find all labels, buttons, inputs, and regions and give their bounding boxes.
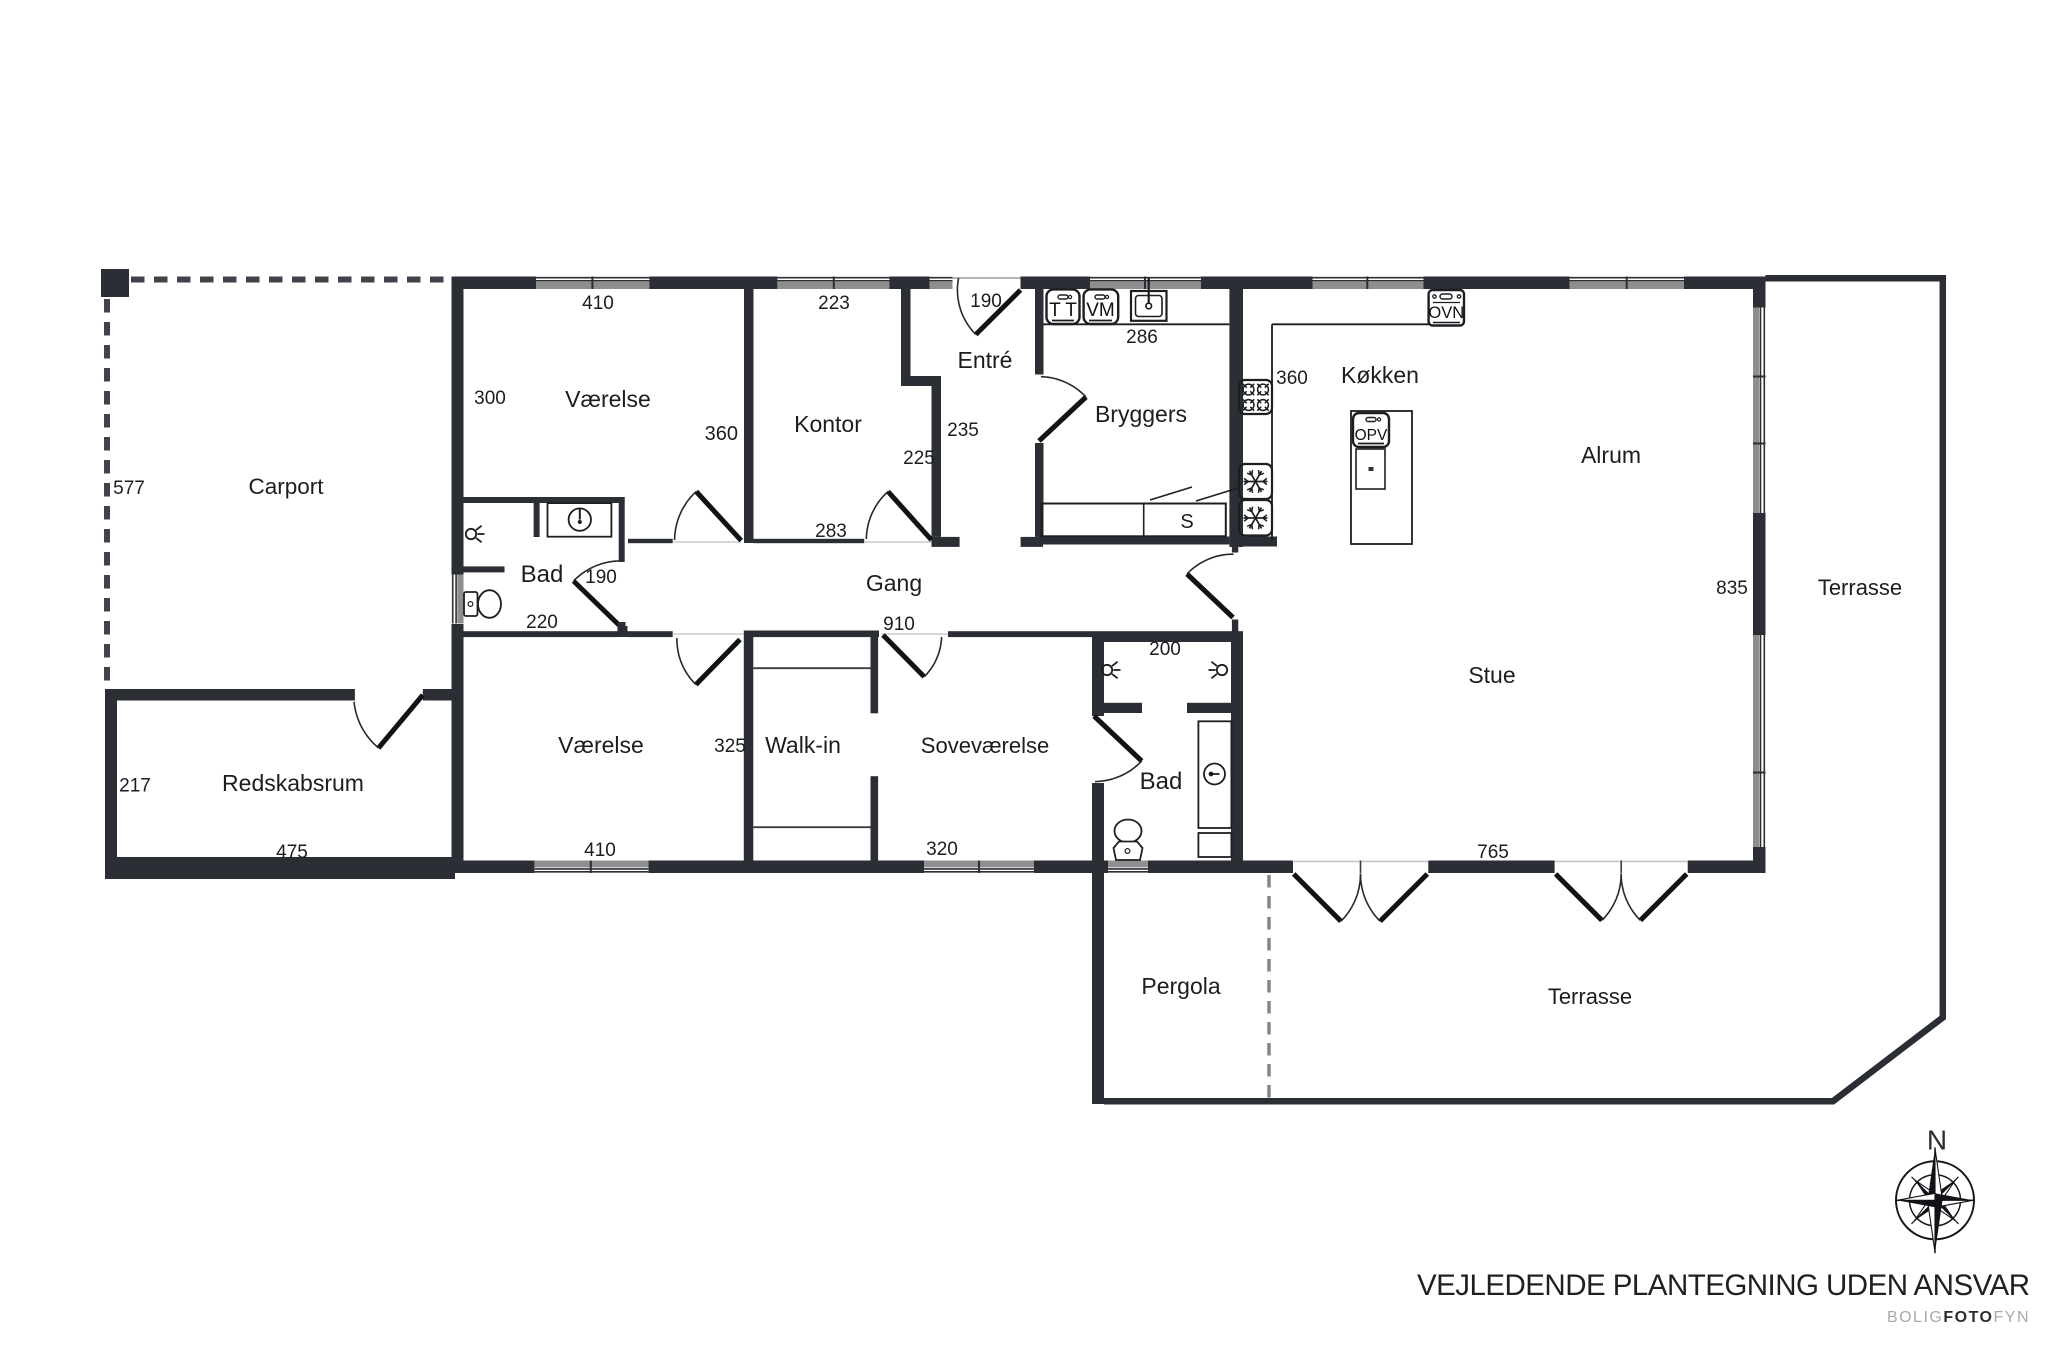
- svg-text:Gang: Gang: [866, 570, 922, 596]
- svg-text:835: 835: [1716, 578, 1748, 599]
- svg-text:190: 190: [970, 291, 1002, 312]
- svg-text:Carport: Carport: [248, 474, 324, 499]
- svg-text:Redskabsrum: Redskabsrum: [222, 770, 364, 796]
- svg-text:283: 283: [815, 521, 847, 542]
- svg-text:OVN: OVN: [1428, 304, 1464, 322]
- svg-text:325: 325: [714, 736, 746, 757]
- svg-text:320: 320: [926, 839, 958, 860]
- svg-text:S: S: [1180, 511, 1193, 533]
- svg-text:286: 286: [1126, 327, 1158, 348]
- svg-text:475: 475: [276, 842, 308, 863]
- svg-text:Entré: Entré: [958, 347, 1013, 373]
- svg-text:OPV: OPV: [1355, 427, 1388, 444]
- svg-text:N: N: [1927, 1125, 1947, 1156]
- svg-text:VM: VM: [1086, 300, 1115, 321]
- svg-text:217: 217: [119, 776, 151, 797]
- svg-text:190: 190: [585, 567, 617, 588]
- svg-text:Værelse: Værelse: [565, 386, 651, 412]
- svg-text:200: 200: [1149, 639, 1181, 660]
- svg-text:765: 765: [1477, 842, 1509, 863]
- svg-text:910: 910: [883, 614, 915, 635]
- svg-text:223: 223: [818, 293, 850, 314]
- svg-text:225: 225: [903, 448, 935, 469]
- svg-text:Alrum: Alrum: [1581, 442, 1641, 468]
- svg-text:220: 220: [526, 612, 558, 633]
- svg-text:Bad: Bad: [1140, 768, 1183, 795]
- svg-text:Bad: Bad: [521, 561, 564, 588]
- svg-text:300: 300: [474, 388, 506, 409]
- svg-text:Bryggers: Bryggers: [1095, 401, 1187, 427]
- svg-text:360: 360: [705, 423, 738, 445]
- svg-text:Terrasse: Terrasse: [1548, 984, 1632, 1009]
- svg-text:360: 360: [1276, 368, 1308, 389]
- svg-text:T T: T T: [1049, 300, 1077, 321]
- svg-text:BOLIGFOTOFYN: BOLIGFOTOFYN: [1887, 1309, 2030, 1326]
- svg-text:Walk-in: Walk-in: [765, 732, 841, 758]
- svg-text:410: 410: [584, 840, 616, 861]
- svg-text:410: 410: [582, 293, 614, 314]
- svg-text:Terrasse: Terrasse: [1818, 575, 1902, 600]
- svg-text:Soveværelse: Soveværelse: [921, 733, 1049, 758]
- svg-text:Pergola: Pergola: [1141, 973, 1220, 999]
- svg-text:Køkken: Køkken: [1341, 362, 1419, 388]
- svg-text:VEJLEDENDE PLANTEGNING UDEN AN: VEJLEDENDE PLANTEGNING UDEN ANSVAR: [1417, 1269, 2030, 1302]
- svg-text:577: 577: [113, 478, 145, 499]
- svg-text:235: 235: [947, 420, 979, 441]
- svg-text:Værelse: Værelse: [558, 732, 644, 758]
- svg-text:Stue: Stue: [1468, 662, 1515, 688]
- svg-text:Kontor: Kontor: [794, 411, 862, 437]
